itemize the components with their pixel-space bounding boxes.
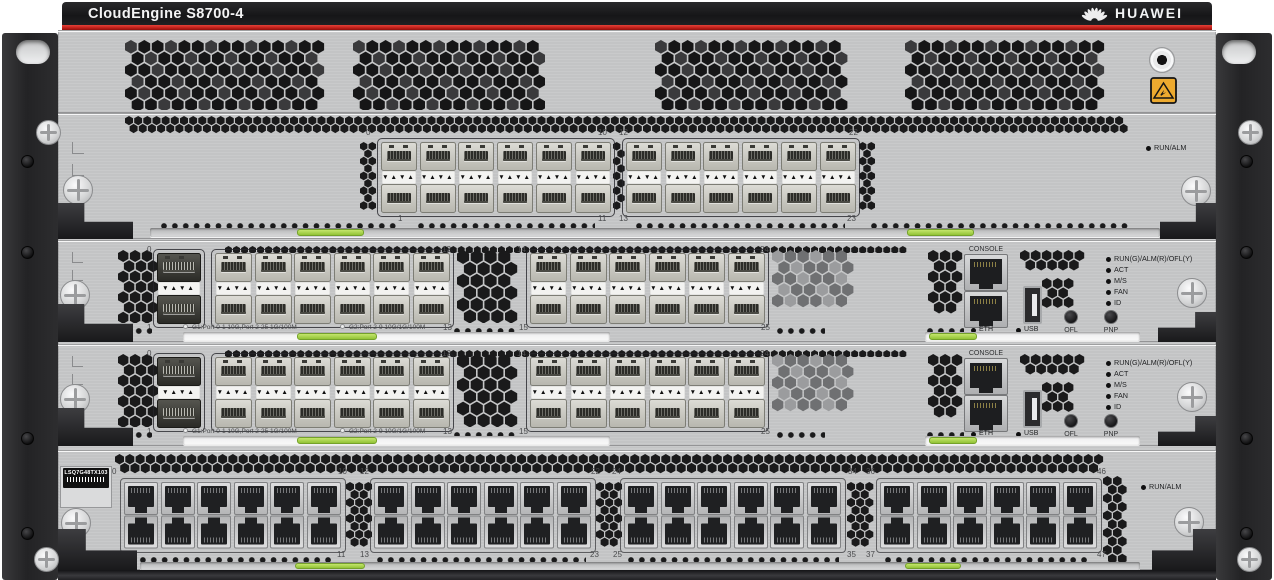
pull-tab: ▼▲▼▲ xyxy=(531,282,566,295)
port-number: 47 xyxy=(1097,551,1106,559)
pull-tab: ▼▲▼▲ xyxy=(610,386,645,399)
sfp-cage-bottom xyxy=(215,399,252,428)
pull-tab: ▼▲▼▲ xyxy=(729,386,764,399)
barcode xyxy=(67,477,105,482)
rj45-port xyxy=(1026,516,1060,549)
pull-tab: ▼▲▼▲ xyxy=(627,171,661,184)
sfp-port-cage: ▼▲▼▲ xyxy=(536,142,572,213)
vent-grille xyxy=(125,40,330,110)
pull-tab: ▼▲▼▲ xyxy=(610,282,645,295)
pull-tab: ▼▲▼▲ xyxy=(689,282,724,295)
status-strip xyxy=(929,333,977,340)
sfp-cage-bottom xyxy=(530,295,567,324)
rj45-port xyxy=(411,482,445,515)
sfp-cage-bottom xyxy=(688,295,725,324)
rj45-port xyxy=(953,482,987,515)
vent-grille xyxy=(457,354,521,427)
rj45-port xyxy=(234,516,268,549)
captive-screw xyxy=(63,175,93,205)
rj45-port xyxy=(374,516,408,549)
rj45-port xyxy=(520,516,554,549)
rj45-port xyxy=(307,516,341,549)
sfp-cage-bottom xyxy=(458,184,494,213)
ofl-button xyxy=(1064,310,1078,324)
sfp-cage-bottom xyxy=(742,184,778,213)
ofl-button xyxy=(1064,414,1078,428)
status-led xyxy=(1106,361,1111,366)
sfp-cage-top xyxy=(255,357,292,386)
rj45-port xyxy=(807,482,841,515)
rj45-port xyxy=(734,516,768,549)
rj45-port xyxy=(197,482,231,515)
alignment-mark xyxy=(72,252,83,263)
led-label: M/S xyxy=(1114,381,1127,389)
led-row: ID xyxy=(1106,299,1121,307)
esd-warning-icon xyxy=(1150,77,1177,104)
line-card-24port: ▼▲▼▲▼▲▼▲▼▲▼▲▼▲▼▲▼▲▼▲▼▲▼▲ ▼▲▼▲▼▲▼▲▼▲▼▲▼▲▼… xyxy=(0,113,1274,239)
pull-tab: ▼▲▼▲ xyxy=(374,282,409,295)
pull-tab: ▼▲▼▲ xyxy=(650,282,685,295)
switch-front-panel: CloudEngine S8700-4 HUAWEI ▼▲▼▲▼▲▼▲▼▲▼▲▼… xyxy=(0,0,1274,580)
ear-screw xyxy=(1240,527,1253,540)
sfp-cage-bottom xyxy=(649,295,686,324)
sfp-uplink-cage: ▼▲▼▲ xyxy=(157,253,201,324)
vent-grille xyxy=(596,482,622,549)
status-led xyxy=(1106,279,1111,284)
port-number: 1 xyxy=(398,215,402,223)
port-number: 12 xyxy=(360,468,369,476)
ear-screw xyxy=(1237,547,1262,572)
rj45-port xyxy=(917,516,951,549)
rj45-port xyxy=(1063,482,1097,515)
status-led xyxy=(1106,394,1111,399)
line-card-sfp-1: 0 1 ▼▲▼▲ ▼▲▼▲▼▲▼▲▼▲▼▲▼▲▼▲▼▲▼▲▼▲▼▲ 12 13 … xyxy=(0,240,1274,342)
led-row: M/S xyxy=(1106,277,1127,285)
pull-tab: ▼▲▼▲ xyxy=(158,282,200,295)
sfp-port-cage: ▼▲▼▲ xyxy=(215,253,252,324)
extraction-rail xyxy=(183,436,610,445)
led-label: ID xyxy=(1114,299,1121,307)
port-group xyxy=(374,482,592,549)
led-row: FAN xyxy=(1106,392,1128,400)
sfp-cage-top xyxy=(334,357,371,386)
huawei-logo-icon xyxy=(1081,4,1108,22)
sfp-cage-top xyxy=(413,253,450,282)
sfp-cage-bottom xyxy=(373,399,410,428)
sfp-port-cage: ▼▲▼▲ xyxy=(742,142,778,213)
port-number: 35 xyxy=(847,551,856,559)
port-number: 24 xyxy=(760,246,769,254)
console-label: CONSOLE xyxy=(958,350,1014,358)
ear-screw xyxy=(1240,432,1253,445)
eth-port xyxy=(964,291,1008,328)
rj45-port xyxy=(624,516,658,549)
port-group: ▼▲▼▲▼▲▼▲▼▲▼▲▼▲▼▲▼▲▼▲▼▲▼▲ xyxy=(215,253,450,324)
pull-tab: ▼▲▼▲ xyxy=(421,171,455,184)
port-number: 10 xyxy=(598,129,607,137)
sfp-cage-top xyxy=(536,142,572,171)
sfp-port-cage: ▼▲▼▲ xyxy=(820,142,856,213)
sfp-cage-top xyxy=(381,142,417,171)
sfp-cage-top xyxy=(334,253,371,282)
sfp-cage-top xyxy=(294,357,331,386)
sfp-cage-bottom xyxy=(334,399,371,428)
port-number: 34 xyxy=(848,468,857,476)
sfp-cage-top xyxy=(781,142,817,171)
sfp-port-cage: ▼▲▼▲ xyxy=(334,357,371,428)
ear-screw xyxy=(21,527,34,540)
sfp-port-cage: ▼▲▼▲ xyxy=(609,357,646,428)
vent-grille xyxy=(1042,278,1074,308)
sfp-cage-bottom xyxy=(334,295,371,324)
vent-grille xyxy=(118,354,158,427)
rj45-port xyxy=(697,482,731,515)
sfp-cage-top xyxy=(458,142,494,171)
port-number: 23 xyxy=(590,551,599,559)
rj45-port xyxy=(661,482,695,515)
extraction-rail xyxy=(140,562,1140,570)
chassis-bottom-edge xyxy=(58,570,1216,580)
pull-tab: ▼▲▼▲ xyxy=(650,386,685,399)
g2-label: G2:Port 2-9 10G/1G/100M xyxy=(349,428,425,435)
sfp-port-cage: ▼▲▼▲ xyxy=(530,253,567,324)
rj45-port xyxy=(770,482,804,515)
brand-name: HUAWEI xyxy=(1115,5,1183,21)
port-group: ▼▲▼▲▼▲▼▲▼▲▼▲▼▲▼▲▼▲▼▲▼▲▼▲ xyxy=(381,142,611,213)
status-led xyxy=(1146,146,1151,151)
vent-grille xyxy=(905,40,1105,110)
rj45-port xyxy=(917,482,951,515)
sfp-cage-top xyxy=(609,357,646,386)
console-port xyxy=(964,254,1008,291)
sfp-port-cage: ▼▲▼▲ xyxy=(381,142,417,213)
sfp-cage-bottom xyxy=(820,184,856,213)
port-number: 11 xyxy=(337,551,345,559)
sfp-cage-top xyxy=(688,253,725,282)
sfp-cage-bottom xyxy=(626,184,662,213)
pull-tab: ▼▲▼▲ xyxy=(531,386,566,399)
port-number: 24 xyxy=(612,468,621,476)
sfp-cage-top xyxy=(373,253,410,282)
sfp-cage-bottom xyxy=(575,184,611,213)
sfp-cage-top xyxy=(215,357,252,386)
sfp-cage-top xyxy=(530,357,567,386)
pull-tab: ▼▲▼▲ xyxy=(571,386,606,399)
port-number: 11 xyxy=(598,215,606,223)
g2-led xyxy=(340,324,345,329)
sfp-cage-top xyxy=(820,142,856,171)
sfp-cage-bottom xyxy=(255,399,292,428)
pull-tab: ▼▲▼▲ xyxy=(335,386,370,399)
led-label: RUN(G)/ALM(R)/OFL(Y) xyxy=(1114,359,1192,367)
vent-grille xyxy=(360,142,378,213)
port-number: 0 xyxy=(366,129,370,137)
sfp-port-cage: ▼▲▼▲ xyxy=(334,253,371,324)
port-number: 14 xyxy=(517,246,526,254)
status-led xyxy=(1141,485,1146,490)
pull-tab: ▼▲▼▲ xyxy=(498,171,532,184)
port-group: ▼▲▼▲▼▲▼▲▼▲▼▲▼▲▼▲▼▲▼▲▼▲▼▲ xyxy=(530,253,765,324)
pull-tab: ▼▲▼▲ xyxy=(158,386,200,399)
led-row: FAN xyxy=(1106,288,1128,296)
pull-tab: ▼▲▼▲ xyxy=(571,282,606,295)
led-row: ACT xyxy=(1106,266,1128,274)
model-name: CloudEngine S8700-4 xyxy=(88,6,244,22)
vent-grille xyxy=(346,482,372,549)
port-number: 0 xyxy=(147,246,151,254)
sfp-cage-top xyxy=(649,253,686,282)
sfp-port-cage: ▼▲▼▲ xyxy=(688,357,725,428)
sfp-port-cage: ▼▲▼▲ xyxy=(728,253,765,324)
sfp-port-cage: ▼▲▼▲ xyxy=(665,142,701,213)
status-led xyxy=(1106,301,1111,306)
led-label: ACT xyxy=(1114,266,1128,274)
pull-tab: ▼▲▼▲ xyxy=(216,386,251,399)
led-row: M/S xyxy=(1106,381,1127,389)
console-label: CONSOLE xyxy=(958,246,1014,254)
port-number: 12 xyxy=(442,246,451,254)
status-strip xyxy=(907,229,974,236)
sfp-cage-bottom xyxy=(413,295,450,324)
eth-port xyxy=(964,395,1008,432)
sfp-cage-bottom xyxy=(157,295,201,324)
led-label: FAN xyxy=(1114,288,1128,296)
rj45-port xyxy=(880,516,914,549)
pull-tab: ▼▲▼▲ xyxy=(821,171,855,184)
g2-led xyxy=(340,428,345,433)
sfp-cage-top xyxy=(373,357,410,386)
sfp-port-cage: ▼▲▼▲ xyxy=(373,253,410,324)
extraction-rail xyxy=(183,332,610,341)
alignment-mark xyxy=(72,142,84,154)
pull-tab: ▼▲▼▲ xyxy=(256,282,291,295)
sfp-port-cage: ▼▲▼▲ xyxy=(649,253,686,324)
brand: HUAWEI xyxy=(1081,4,1183,22)
pull-tab: ▼▲▼▲ xyxy=(374,386,409,399)
sfp-cage-top xyxy=(609,253,646,282)
sfp-cage-top xyxy=(728,253,765,282)
sfp-uplink-stack: ▼▲▼▲ xyxy=(157,253,201,324)
led-label: ACT xyxy=(1114,370,1128,378)
rj45-port xyxy=(624,482,658,515)
sfp-cage-top xyxy=(420,142,456,171)
sfp-port-cage: ▼▲▼▲ xyxy=(688,253,725,324)
banner: CloudEngine S8700-4 HUAWEI xyxy=(62,2,1212,25)
sfp-cage-bottom xyxy=(157,399,201,428)
rj45-port xyxy=(270,516,304,549)
pull-tab: ▼▲▼▲ xyxy=(414,282,449,295)
rj45-port xyxy=(161,516,195,549)
sfp-cage-bottom xyxy=(536,184,572,213)
rj45-port xyxy=(447,482,481,515)
port-number: 0 xyxy=(112,468,116,476)
sfp-cage-top xyxy=(294,253,331,282)
port-number: 36 xyxy=(866,468,875,476)
pull-tab: ▼▲▼▲ xyxy=(295,386,330,399)
led-row: ACT xyxy=(1106,370,1128,378)
sfp-cage-bottom xyxy=(728,295,765,324)
vent-grille xyxy=(1020,250,1088,278)
pull-tab: ▼▲▼▲ xyxy=(782,171,816,184)
pull-tab: ▼▲▼▲ xyxy=(414,386,449,399)
sfp-port-cage: ▼▲▼▲ xyxy=(458,142,494,213)
port-group xyxy=(624,482,842,549)
ear-screw xyxy=(21,432,34,445)
sfp-port-cage: ▼▲▼▲ xyxy=(570,253,607,324)
port-number: 22 xyxy=(849,129,858,137)
sfp-cage-bottom xyxy=(215,295,252,324)
sfp-cage-top xyxy=(688,357,725,386)
status-led xyxy=(1106,372,1111,377)
sfp-cage-bottom xyxy=(294,399,331,428)
port-group: ▼▲▼▲▼▲▼▲▼▲▼▲▼▲▼▲▼▲▼▲▼▲▼▲ xyxy=(626,142,856,213)
port-number: 13 xyxy=(443,428,452,436)
rack-ear-left xyxy=(2,33,58,580)
sfp-cage-top xyxy=(665,142,701,171)
port-number: 24 xyxy=(760,350,769,358)
rj45-port xyxy=(520,482,554,515)
sfp-uplink-stack: ▼▲▼▲ xyxy=(157,357,201,428)
perforation-row xyxy=(776,327,825,335)
sfp-port-cage: ▼▲▼▲ xyxy=(570,357,607,428)
sfp-cage-top xyxy=(215,253,252,282)
sfp-cage-bottom xyxy=(665,184,701,213)
rj45-port xyxy=(484,516,518,549)
module-label-box: LSQ7G48TX103 xyxy=(60,466,112,508)
sfp-cage-bottom xyxy=(609,295,646,324)
pull-tab: ▼▲▼▲ xyxy=(537,171,571,184)
rj45-port xyxy=(697,516,731,549)
sfp-cage-bottom xyxy=(373,295,410,324)
vent-band xyxy=(115,454,1105,476)
sfp-uplink-cage: ▼▲▼▲ xyxy=(157,357,201,428)
rj45-port xyxy=(234,482,268,515)
rj45-port xyxy=(124,482,158,515)
pull-tab: ▼▲▼▲ xyxy=(689,386,724,399)
sfp-port-cage: ▼▲▼▲ xyxy=(497,142,533,213)
line-card-48port: LSQ7G48TX103 0 10 12 22 24 34 36 46 1 11… xyxy=(0,450,1274,570)
g1-label: G1:Port 0-1 10G,Port 2-25 1G/100M xyxy=(192,324,297,331)
sfp-cage-top xyxy=(255,253,292,282)
vent-grille xyxy=(928,250,964,318)
pull-tab: ▼▲▼▲ xyxy=(666,171,700,184)
console-port xyxy=(964,358,1008,395)
led-label: FAN xyxy=(1114,392,1128,400)
sfp-cage-bottom xyxy=(413,399,450,428)
port-group xyxy=(880,482,1098,549)
pnp-button xyxy=(1104,310,1118,324)
sfp-port-cage: ▼▲▼▲ xyxy=(373,357,410,428)
vent-grille xyxy=(118,250,158,323)
sfp-cage-top xyxy=(157,357,201,386)
sfp-cage-bottom xyxy=(570,399,607,428)
port-number: 37 xyxy=(866,551,875,559)
captive-screw xyxy=(1177,278,1207,308)
sfp-port-cage: ▼▲▼▲ xyxy=(215,357,252,428)
sfp-port-cage: ▼▲▼▲ xyxy=(530,357,567,428)
rj45-port xyxy=(447,516,481,549)
alignment-mark xyxy=(72,356,83,367)
vent-grille xyxy=(1042,382,1074,412)
rj45-port xyxy=(880,482,914,515)
rj45-port xyxy=(770,516,804,549)
rj45-port xyxy=(270,482,304,515)
sfp-cage-top xyxy=(728,357,765,386)
rj45-port xyxy=(161,482,195,515)
pull-tab: ▼▲▼▲ xyxy=(295,282,330,295)
rj45-port xyxy=(990,482,1024,515)
port-number: 22 xyxy=(591,468,600,476)
sfp-cage-top xyxy=(649,357,686,386)
rj45-port xyxy=(661,516,695,549)
sfp-port-cage: ▼▲▼▲ xyxy=(413,253,450,324)
led-row: ID xyxy=(1106,403,1121,411)
esd-ground-jack xyxy=(1149,47,1175,73)
usb-port xyxy=(1023,390,1042,428)
module-label: LSQ7G48TX103 xyxy=(63,468,109,488)
pull-tab: ▼▲▼▲ xyxy=(743,171,777,184)
port-number: 13 xyxy=(443,324,452,332)
sfp-cage-bottom xyxy=(728,399,765,428)
pull-tab: ▼▲▼▲ xyxy=(382,171,416,184)
pnp-button xyxy=(1104,414,1118,428)
status-led xyxy=(1106,268,1111,273)
sfp-cage-bottom xyxy=(703,184,739,213)
ear-screw xyxy=(1240,155,1253,168)
sfp-port-cage: ▼▲▼▲ xyxy=(649,357,686,428)
status-led xyxy=(1106,405,1111,410)
port-number: 46 xyxy=(1097,468,1106,476)
rj45-port xyxy=(124,516,158,549)
run-alm-label: RUN/ALM xyxy=(1149,483,1181,491)
rj45-port xyxy=(411,516,445,549)
sfp-cage-bottom xyxy=(420,184,456,213)
vent-grille xyxy=(772,250,856,313)
vent-grille xyxy=(457,250,521,323)
vent-grille xyxy=(928,354,964,422)
sfp-cage-bottom xyxy=(688,399,725,428)
status-led xyxy=(1106,383,1111,388)
sfp-cage-top xyxy=(570,357,607,386)
g2-label: G2:Port 2-9 10G/1G/100M xyxy=(349,324,425,331)
led-label: ID xyxy=(1114,403,1121,411)
rj45-port xyxy=(374,482,408,515)
vent-grille xyxy=(1020,354,1088,382)
g1-led xyxy=(183,324,188,329)
run-alm-label: RUN/ALM xyxy=(1154,144,1186,152)
port-number: 25 xyxy=(761,324,770,332)
sfp-port-cage: ▼▲▼▲ xyxy=(294,357,331,428)
ear-screw xyxy=(21,155,34,168)
sfp-cage-bottom xyxy=(570,295,607,324)
status-strip xyxy=(297,333,377,340)
sfp-cage-top xyxy=(497,142,533,171)
g1-label: G1:Port 0-1 10G,Port 2-25 1G/100M xyxy=(192,428,297,435)
rj45-port xyxy=(1026,482,1060,515)
pull-tab: ▼▲▼▲ xyxy=(256,386,291,399)
sfp-port-cage: ▼▲▼▲ xyxy=(575,142,611,213)
rj45-port xyxy=(990,516,1024,549)
port-number: 12 xyxy=(619,129,628,137)
ear-screw xyxy=(34,547,59,572)
ear-screw xyxy=(21,246,34,259)
sfp-cage-top xyxy=(626,142,662,171)
vent-grille xyxy=(655,40,850,110)
status-strip xyxy=(297,437,377,444)
vent-grille xyxy=(353,40,545,110)
port-number: 14 xyxy=(517,350,526,358)
run-alm-led: RUN/ALM xyxy=(1141,483,1181,491)
